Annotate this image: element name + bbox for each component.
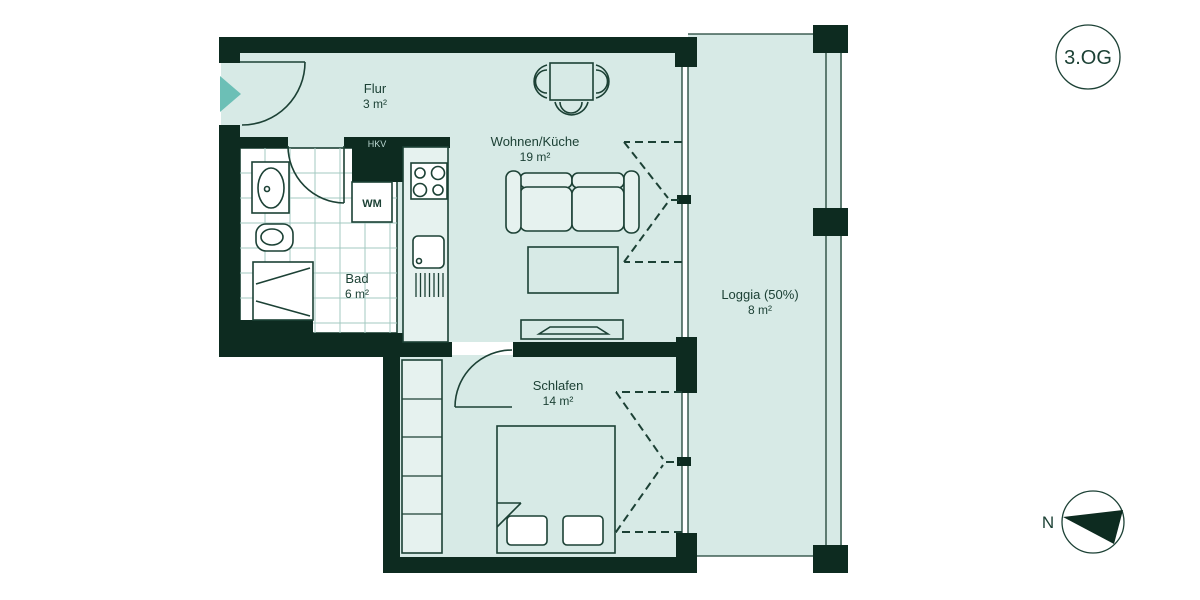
pillow (563, 516, 603, 545)
room-name: Wohnen/Küche (491, 134, 580, 149)
washing-machine: WM (352, 182, 392, 222)
room-name: Bad (345, 271, 368, 286)
room-name: Flur (364, 81, 387, 96)
washbasin (252, 162, 289, 213)
hkv-label: HKV (368, 139, 387, 149)
room-area: 6 m² (345, 287, 369, 301)
wardrobe (402, 360, 442, 553)
floor-badge-label: 3.OG (1064, 47, 1112, 69)
compass-needle (1063, 510, 1123, 544)
north-compass-icon: N (1042, 491, 1124, 553)
toilet (256, 224, 293, 251)
stove (411, 163, 447, 199)
room-area: 3 m² (363, 97, 387, 111)
tv-sideboard (521, 320, 623, 339)
coffee-table (528, 247, 618, 293)
bed (497, 426, 615, 553)
room-area: 14 m² (543, 394, 574, 408)
room-name: Schlafen (533, 378, 584, 393)
pillow (507, 516, 547, 545)
window-band (682, 53, 688, 557)
room-area: 8 m² (748, 303, 772, 317)
floor-badge: 3.OG (1056, 25, 1120, 89)
room-area: 19 m² (520, 150, 551, 164)
floorplan-drawing: WM (0, 0, 1200, 600)
door-meeting-tick-living (677, 195, 691, 204)
sofa (506, 171, 639, 233)
floorplan-page: WM (0, 0, 1200, 600)
dining-table (550, 63, 593, 100)
north-label: N (1042, 513, 1054, 532)
shower (253, 262, 313, 320)
room-name: Loggia (50%) (721, 287, 798, 302)
washing-machine-label: WM (362, 198, 382, 210)
